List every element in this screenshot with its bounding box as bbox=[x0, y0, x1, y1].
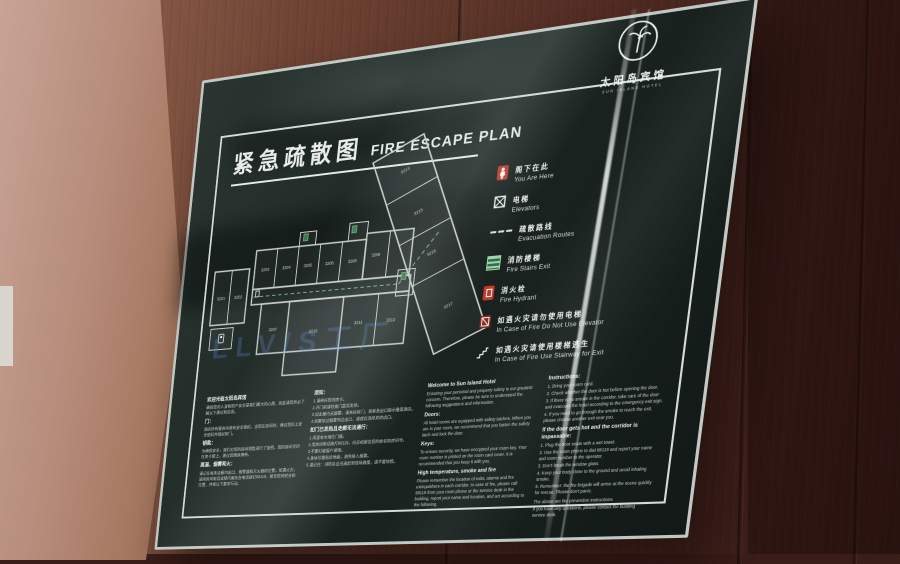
zh-fire-text: 请记住每条走廊内出口、报警器和灭火器的位置。如遇火灾，请用房间电话或楼内服务台电… bbox=[198, 467, 298, 488]
zh-instruction-lines: 1.请带好您的房卡。2.开门前请检查门是否发热。3.如走廊内无烟雾，请关好房门，… bbox=[311, 392, 419, 425]
fire-hydrant-icon bbox=[482, 285, 495, 300]
room-label: 3203 bbox=[261, 267, 271, 273]
palm-tree-icon bbox=[614, 16, 662, 66]
info-col-zh-instructions: 须知： 1.请带好您的房卡。2.开门前请检查门是否发热。3.如走廊内无烟雾，请关… bbox=[300, 384, 420, 526]
room-label: 3208 bbox=[348, 258, 358, 264]
stairs-marker bbox=[401, 272, 407, 279]
stairs-marker bbox=[303, 234, 308, 241]
fire-escape-sign-panel: 太阳岛宾馆 SUN ISLAND HOTEL 紧急疏散图FIRE ESCAPE … bbox=[154, 0, 758, 550]
foreground-wall-column bbox=[0, 0, 184, 560]
stairs-marker bbox=[352, 226, 357, 233]
info-text: 欢迎光临太阳岛宾馆 确保您的人身和财产安全是我们最大的心愿，因此请您务必了解以下… bbox=[194, 368, 668, 529]
room-label: 3209 bbox=[371, 252, 381, 258]
room-label: 3202 bbox=[234, 294, 243, 300]
room-label: 3205 bbox=[303, 262, 313, 268]
evacuation-route-icon bbox=[490, 229, 512, 235]
elevator-icon bbox=[493, 195, 506, 209]
sign-plate: 紧急疏散图FIRE ESCAPE PLAN bbox=[181, 68, 721, 519]
fire-stairs-icon bbox=[486, 255, 502, 271]
you-are-here-icon bbox=[496, 165, 509, 181]
hydrant-marker bbox=[255, 291, 259, 297]
info-col-zh-welcome: 欢迎光临太阳岛宾馆 确保您的人身和财产安全是我们最大的心愿，因此请您务必了解以下… bbox=[194, 391, 307, 529]
paper-edge bbox=[0, 286, 13, 366]
legend-label-en: Elevators bbox=[511, 203, 540, 213]
wall-shadow-right bbox=[748, 0, 900, 554]
room-label: 3204 bbox=[282, 265, 292, 271]
no-elevator-icon bbox=[479, 315, 491, 328]
room-label: 3201 bbox=[217, 296, 226, 302]
en-instruction-lines: 1. Bring your room card.2. Check whether… bbox=[543, 377, 667, 425]
stairway-exit-icon bbox=[475, 345, 489, 359]
legend-label-en: Fire Hydrant bbox=[500, 293, 537, 303]
room-label: 3206 bbox=[325, 260, 335, 266]
legend: 阁下在此 You Are Here 电梯 Elevators 疏散路线 Evac… bbox=[474, 142, 704, 376]
en-fire-text: Please remember the location of exits, a… bbox=[414, 475, 528, 509]
zh-hotdoor-lines: 1.用湿毛巾堵住门缝。2.用房间电话拨打88119，向总机报告您的姓名和房间号。… bbox=[306, 430, 414, 468]
photo-of-fire-escape-sign: { "logo": { "name_zh": "太阳岛宾馆", "name_en… bbox=[0, 0, 900, 554]
info-col-en-welcome: Welcome to Sun Island Hotel Ensuring you… bbox=[412, 376, 540, 523]
